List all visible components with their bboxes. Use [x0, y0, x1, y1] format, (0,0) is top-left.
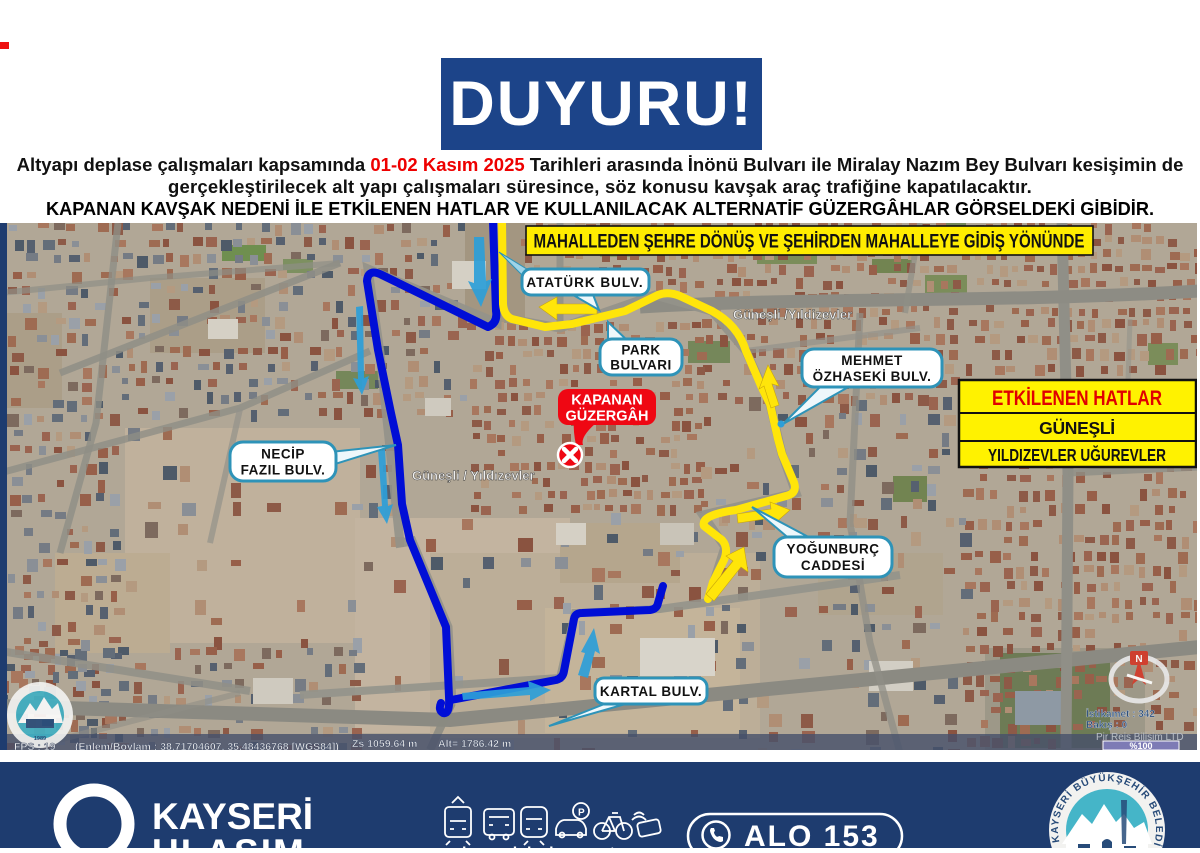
svg-text:KARTAL BULV.: KARTAL BULV. — [600, 684, 702, 699]
svg-text:ETKİLENEN HATLAR: ETKİLENEN HATLAR — [992, 387, 1162, 410]
svg-text:(Enlem/Boylam : 38.71704607, 3: (Enlem/Boylam : 38.71704607, 35.48436768… — [75, 741, 339, 750]
svg-text:N: N — [1135, 654, 1142, 665]
svg-text:Alt= 1786.42 m: Alt= 1786.42 m — [438, 738, 511, 750]
svg-text:KAYSERİ: KAYSERİ — [152, 796, 313, 837]
svg-text:ÖZHASEKİ BULV.: ÖZHASEKİ BULV. — [813, 369, 932, 384]
svg-text:BULVARI: BULVARI — [610, 358, 672, 373]
svg-text:YOĞUNBURÇ: YOĞUNBURÇ — [786, 542, 879, 557]
svg-text:Güneşli / Yıldızevler: Güneşli / Yıldızevler — [412, 468, 535, 483]
svg-text:Bakış : 0: Bakış : 0 — [1086, 720, 1128, 731]
svg-text:PARK: PARK — [621, 343, 660, 358]
svg-text:ALO 153: ALO 153 — [744, 820, 880, 848]
svg-text:GÜNEŞLİ: GÜNEŞLİ — [1039, 418, 1115, 438]
svg-text:NECİP: NECİP — [261, 447, 305, 462]
svg-text:FPS : 19: FPS : 19 — [14, 741, 56, 750]
svg-text:%100: %100 — [1129, 741, 1152, 750]
svg-text:İstikamet : 342: İstikamet : 342 — [1086, 707, 1155, 720]
svg-text:Zs 1059.64 m: Zs 1059.64 m — [352, 738, 417, 750]
svg-text:MEHMET: MEHMET — [841, 353, 903, 368]
svg-text:CADDESİ: CADDESİ — [801, 558, 865, 573]
svg-text:Güneşli /Yıldizevler: Güneşli /Yıldizevler — [733, 307, 852, 322]
svg-text:ULASIM: ULASIM — [152, 832, 306, 848]
svg-text:FAZIL BULV.: FAZIL BULV. — [241, 463, 326, 478]
svg-text:P: P — [578, 808, 585, 819]
svg-text:GÜZERGÂH: GÜZERGÂH — [566, 407, 649, 425]
svg-text:ATATÜRK BULV.: ATATÜRK BULV. — [526, 275, 643, 290]
svg-text:MAHALLEDEN ŞEHRE DÖNÜŞ VE ŞEHİ: MAHALLEDEN ŞEHRE DÖNÜŞ VE ŞEHİRDEN MAHAL… — [534, 230, 1085, 253]
svg-text:KAPANAN: KAPANAN — [571, 393, 642, 409]
svg-text:YILDIZEVLER UĞUREVLER: YILDIZEVLER UĞUREVLER — [988, 444, 1166, 465]
